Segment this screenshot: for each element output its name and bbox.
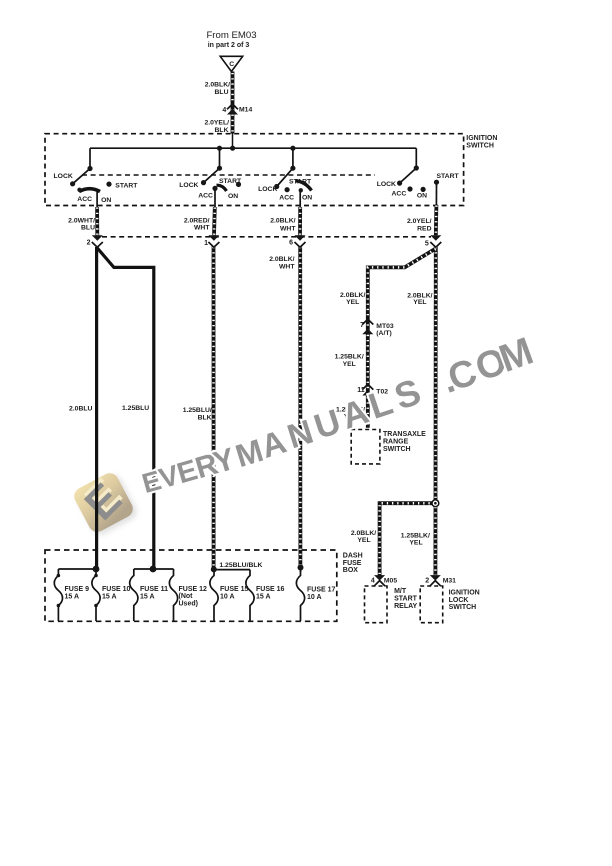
svg-text:LOCK: LOCK bbox=[258, 186, 277, 193]
svg-text:IGNITION: IGNITION bbox=[449, 590, 480, 597]
svg-text:FUSE 16: FUSE 16 bbox=[256, 586, 285, 593]
svg-text:2.0BLU: 2.0BLU bbox=[69, 405, 93, 412]
svg-text:10 A: 10 A bbox=[220, 594, 235, 601]
svg-text:YEL: YEL bbox=[346, 299, 359, 306]
svg-text:FUSE 15: FUSE 15 bbox=[220, 586, 249, 593]
svg-text:2: 2 bbox=[87, 240, 91, 247]
svg-text:LOCK: LOCK bbox=[449, 597, 469, 604]
svg-text:From EM03: From EM03 bbox=[206, 30, 256, 41]
svg-text:SWITCH: SWITCH bbox=[449, 604, 477, 611]
svg-text:2.0BLK/: 2.0BLK/ bbox=[340, 292, 365, 299]
svg-text:M14: M14 bbox=[239, 106, 252, 113]
svg-text:LOCK: LOCK bbox=[179, 182, 198, 189]
svg-text:LOCK: LOCK bbox=[54, 173, 73, 180]
svg-text:RED: RED bbox=[417, 226, 431, 233]
svg-text:BOX: BOX bbox=[343, 567, 359, 574]
svg-text:START: START bbox=[394, 596, 418, 603]
svg-text:FUSE 12: FUSE 12 bbox=[179, 586, 208, 593]
svg-text:M/T: M/T bbox=[394, 588, 407, 595]
svg-text:DASH: DASH bbox=[343, 553, 363, 560]
svg-text:SWITCH: SWITCH bbox=[466, 142, 494, 149]
svg-text:FUSE 11: FUSE 11 bbox=[140, 586, 168, 593]
svg-text:FUSE: FUSE bbox=[343, 560, 362, 567]
svg-text:ACC: ACC bbox=[77, 196, 92, 203]
svg-text:1.25BLK/: 1.25BLK/ bbox=[335, 354, 364, 361]
svg-text:WHT: WHT bbox=[279, 264, 295, 271]
svg-text:2: 2 bbox=[425, 578, 429, 585]
svg-text:WHT: WHT bbox=[194, 225, 210, 232]
svg-text:6: 6 bbox=[289, 240, 293, 247]
svg-text:1: 1 bbox=[204, 240, 208, 247]
svg-text:15 A: 15 A bbox=[102, 594, 117, 601]
svg-text:5: 5 bbox=[425, 241, 429, 248]
svg-text:WHT: WHT bbox=[280, 225, 296, 232]
svg-text:in part 2 of 3: in part 2 of 3 bbox=[208, 42, 250, 49]
svg-text:FUSE 9: FUSE 9 bbox=[65, 586, 90, 593]
svg-text:BLU: BLU bbox=[81, 225, 95, 232]
svg-text:SWITCH: SWITCH bbox=[383, 446, 411, 453]
svg-text:2.0BLK/: 2.0BLK/ bbox=[205, 82, 230, 89]
svg-text:RANGE: RANGE bbox=[383, 439, 409, 446]
svg-text:(A/T): (A/T) bbox=[376, 330, 391, 337]
svg-text:M05: M05 bbox=[384, 577, 397, 584]
svg-text:FUSE 10: FUSE 10 bbox=[102, 586, 131, 593]
svg-text:START: START bbox=[437, 173, 460, 180]
svg-text:2.0BLK/: 2.0BLK/ bbox=[270, 218, 295, 225]
svg-text:START: START bbox=[289, 179, 312, 186]
svg-text:15 A: 15 A bbox=[256, 594, 271, 601]
svg-text:YEL: YEL bbox=[409, 539, 422, 546]
svg-text:ACC: ACC bbox=[198, 192, 213, 199]
svg-text:2.0RED/: 2.0RED/ bbox=[184, 217, 210, 224]
svg-text:YEL: YEL bbox=[357, 537, 370, 544]
svg-text:7: 7 bbox=[360, 322, 364, 329]
svg-text:2.0YEL/: 2.0YEL/ bbox=[407, 218, 432, 225]
svg-text:START: START bbox=[219, 178, 242, 185]
svg-text:ACC: ACC bbox=[392, 191, 407, 198]
svg-text:YEL: YEL bbox=[413, 299, 426, 306]
svg-text:C: C bbox=[229, 61, 234, 68]
svg-text:FUSE 17: FUSE 17 bbox=[307, 586, 336, 593]
svg-text:2.0BLK/: 2.0BLK/ bbox=[269, 256, 294, 263]
svg-text:BLK: BLK bbox=[215, 127, 229, 134]
svg-text:10 A: 10 A bbox=[307, 594, 322, 601]
svg-text:4: 4 bbox=[222, 107, 226, 114]
svg-text:M31: M31 bbox=[443, 577, 456, 584]
svg-text:1.25BLU/: 1.25BLU/ bbox=[183, 407, 212, 414]
svg-text:ON: ON bbox=[228, 193, 238, 200]
svg-text:Used): Used) bbox=[179, 601, 198, 608]
svg-text:ON: ON bbox=[417, 193, 427, 200]
svg-text:4: 4 bbox=[371, 578, 375, 585]
svg-text:YEL: YEL bbox=[343, 361, 356, 368]
svg-text:LOCK: LOCK bbox=[377, 181, 396, 188]
svg-text:BLU: BLU bbox=[215, 89, 229, 96]
svg-text:15 A: 15 A bbox=[140, 593, 155, 600]
svg-text:ON: ON bbox=[302, 195, 312, 202]
svg-text:2.0WHT/: 2.0WHT/ bbox=[68, 217, 95, 224]
svg-text:2.0YEL/: 2.0YEL/ bbox=[204, 120, 229, 127]
svg-text:ON: ON bbox=[101, 197, 111, 204]
svg-text:15 A: 15 A bbox=[65, 594, 80, 601]
svg-text:START: START bbox=[115, 183, 138, 190]
svg-text:BLK: BLK bbox=[198, 414, 212, 421]
svg-text:(Not: (Not bbox=[179, 593, 194, 600]
svg-text:TRANSAXLE: TRANSAXLE bbox=[383, 431, 426, 438]
svg-text:1.25BLU/BLK: 1.25BLU/BLK bbox=[219, 562, 262, 569]
svg-text:ACC: ACC bbox=[279, 194, 294, 201]
svg-text:1.25BLU: 1.25BLU bbox=[122, 405, 149, 412]
svg-text:RELAY: RELAY bbox=[394, 603, 417, 610]
svg-text:MT03: MT03 bbox=[376, 323, 394, 330]
svg-text:IGNITION: IGNITION bbox=[466, 135, 497, 142]
